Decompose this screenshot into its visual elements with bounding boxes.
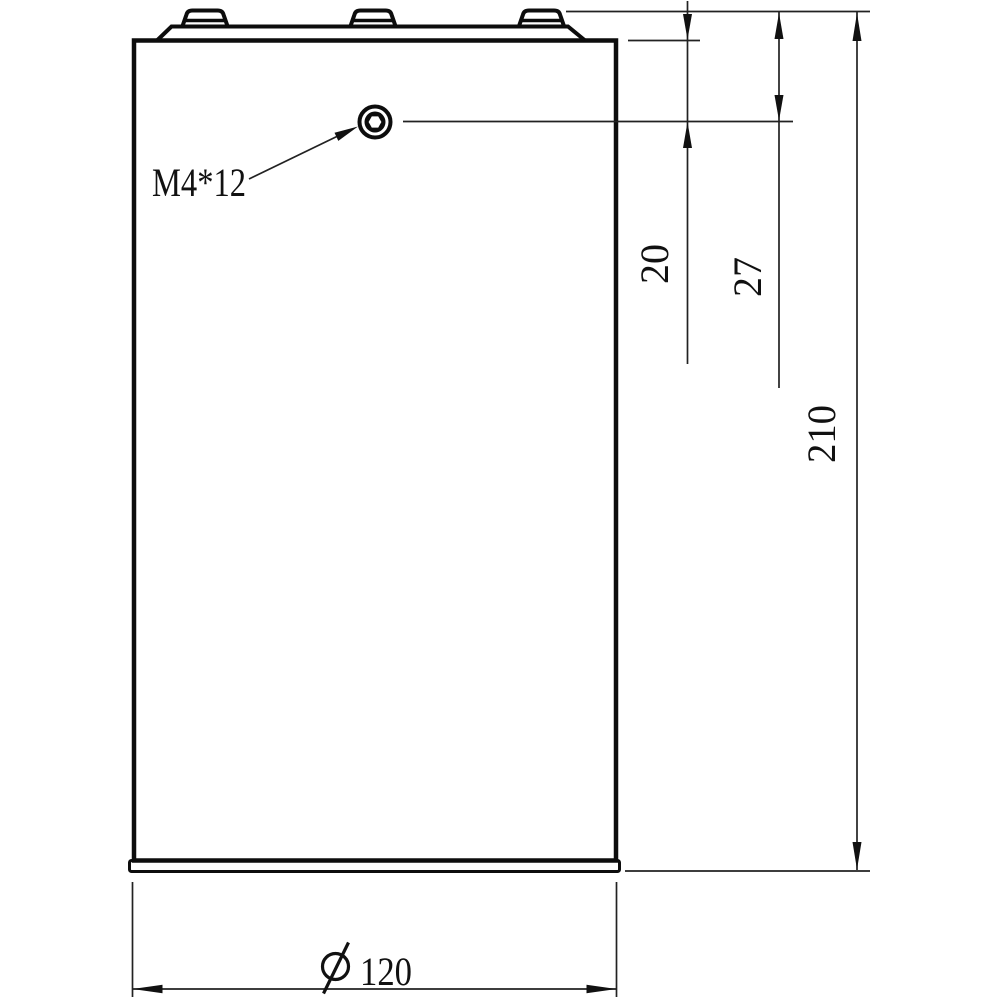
dimension-diameter-120: 120: [133, 943, 617, 995]
callout-leader-line: [249, 134, 342, 179]
dim-210-arrow-down-icon: [853, 842, 862, 870]
dim-210-value: 210: [799, 405, 844, 463]
body-outline: [130, 27, 620, 872]
diameter-symbol-icon: [323, 943, 349, 994]
technical-drawing-canvas: M4*12 20 27 2: [0, 0, 1000, 1000]
dim-120-arrow-right-icon: [587, 985, 617, 994]
callout-arrowhead-icon: [335, 127, 359, 141]
dim-210-arrow-up-icon: [853, 13, 862, 41]
dim-27-arrow-up-icon: [775, 13, 784, 39]
top-cap: [158, 27, 585, 41]
dim-20-arrow-up-icon: [683, 122, 692, 148]
dimension-210: 210: [799, 12, 862, 870]
callout-label: M4*12: [152, 160, 246, 205]
dim-27-arrow-down-icon: [775, 95, 784, 121]
dim-120-arrow-left-icon: [133, 985, 163, 994]
dim-20-value: 20: [632, 244, 677, 284]
dim-20-arrow-down-icon: [683, 14, 692, 40]
drawing-svg: M4*12 20 27 2: [0, 0, 1000, 1000]
screw-callout: M4*12: [152, 127, 358, 206]
dimension-27: 27: [725, 12, 784, 388]
dim-27-value: 27: [725, 257, 770, 297]
dim-120-value: 120: [360, 949, 412, 994]
dimension-20: 20: [632, 1, 692, 364]
screw-hole: [360, 107, 391, 138]
